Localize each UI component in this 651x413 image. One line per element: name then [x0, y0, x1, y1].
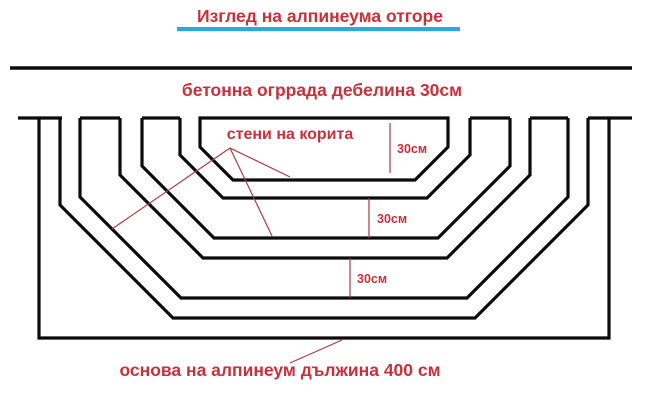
dimension-annotations: 30см 30см 30см — [350, 123, 427, 298]
base-length-label: основа на алпинеум дължина 400 см — [119, 360, 440, 380]
alpineum-top-view-diagram: Изглед на алпинеума отгоре бетонна огрра… — [0, 0, 651, 413]
dimension-label-top: 30см — [397, 142, 427, 156]
dimension-label-bottom: 30см — [357, 272, 387, 286]
leader-line-right — [230, 148, 290, 177]
trough-outlines — [39, 118, 609, 338]
trough-walls-label: стени на корита — [227, 126, 354, 143]
leader-line-down — [230, 148, 272, 236]
alpineum-diagram-page: Изглед на алпинеума отгоре бетонна огрра… — [0, 0, 651, 413]
fence-thickness-label: бетонна огррада дебелина 30см — [182, 80, 462, 100]
dimension-label-middle: 30см — [377, 212, 407, 226]
base-fence-outline — [39, 118, 609, 338]
diagram-title: Изглед на алпинеума отгоре — [197, 6, 443, 26]
title-underline — [177, 27, 460, 31]
